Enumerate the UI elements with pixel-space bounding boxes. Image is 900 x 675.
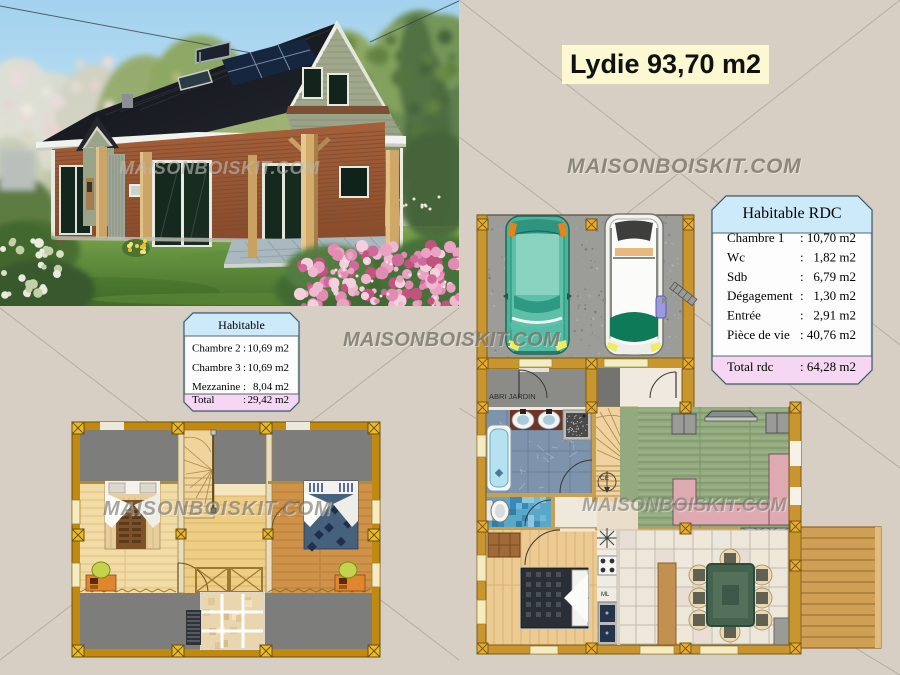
svg-text:Dégagement: Dégagement (727, 288, 793, 303)
svg-text:Total rdc: Total rdc (727, 359, 774, 374)
svg-text:CE: CE (600, 475, 610, 482)
svg-text::: : (243, 394, 246, 406)
svg-text:Habitable: Habitable (218, 318, 265, 332)
svg-text:64,28 m2: 64,28 m2 (807, 359, 856, 374)
svg-text::: : (800, 327, 804, 342)
svg-text::: : (800, 269, 804, 284)
svg-text::: : (243, 362, 246, 374)
svg-text::: : (800, 288, 804, 303)
svg-text:ML: ML (601, 592, 610, 598)
svg-text:Habitable RDC: Habitable RDC (742, 205, 841, 222)
svg-text:Mezzanine: Mezzanine (192, 381, 240, 393)
svg-text:ABRI JARDIN: ABRI JARDIN (489, 392, 536, 401)
svg-text:Total: Total (192, 394, 214, 406)
svg-text:29,42 m2: 29,42 m2 (247, 394, 289, 406)
svg-text:6,79 m2: 6,79 m2 (813, 269, 856, 284)
svg-text:10,70 m2: 10,70 m2 (807, 230, 856, 245)
svg-text:1,30 m2: 1,30 m2 (813, 288, 856, 303)
svg-text::: : (243, 343, 246, 355)
svg-text:Chambre 3: Chambre 3 (192, 362, 241, 374)
svg-text::: : (800, 249, 804, 264)
svg-text:40,76 m2: 40,76 m2 (807, 327, 856, 342)
svg-text:Pièce de vie: Pièce de vie (727, 327, 790, 342)
svg-text:Chambre 2: Chambre 2 (192, 343, 241, 355)
svg-text::: : (243, 381, 246, 393)
svg-text:10,69 m2: 10,69 m2 (247, 343, 289, 355)
svg-text:1,82 m2: 1,82 m2 (813, 249, 856, 264)
svg-text:8,04 m2: 8,04 m2 (253, 381, 289, 393)
svg-text:Chambre 1: Chambre 1 (727, 230, 784, 245)
svg-text:10,69 m2: 10,69 m2 (247, 362, 289, 374)
svg-text::: : (800, 230, 804, 245)
svg-text::: : (800, 359, 804, 374)
svg-text::: : (800, 308, 804, 323)
svg-text:2,91 m2: 2,91 m2 (813, 308, 856, 323)
svg-text:Wc: Wc (727, 249, 745, 264)
svg-text:Sdb: Sdb (727, 269, 747, 284)
svg-text:Entrée: Entrée (727, 308, 761, 323)
